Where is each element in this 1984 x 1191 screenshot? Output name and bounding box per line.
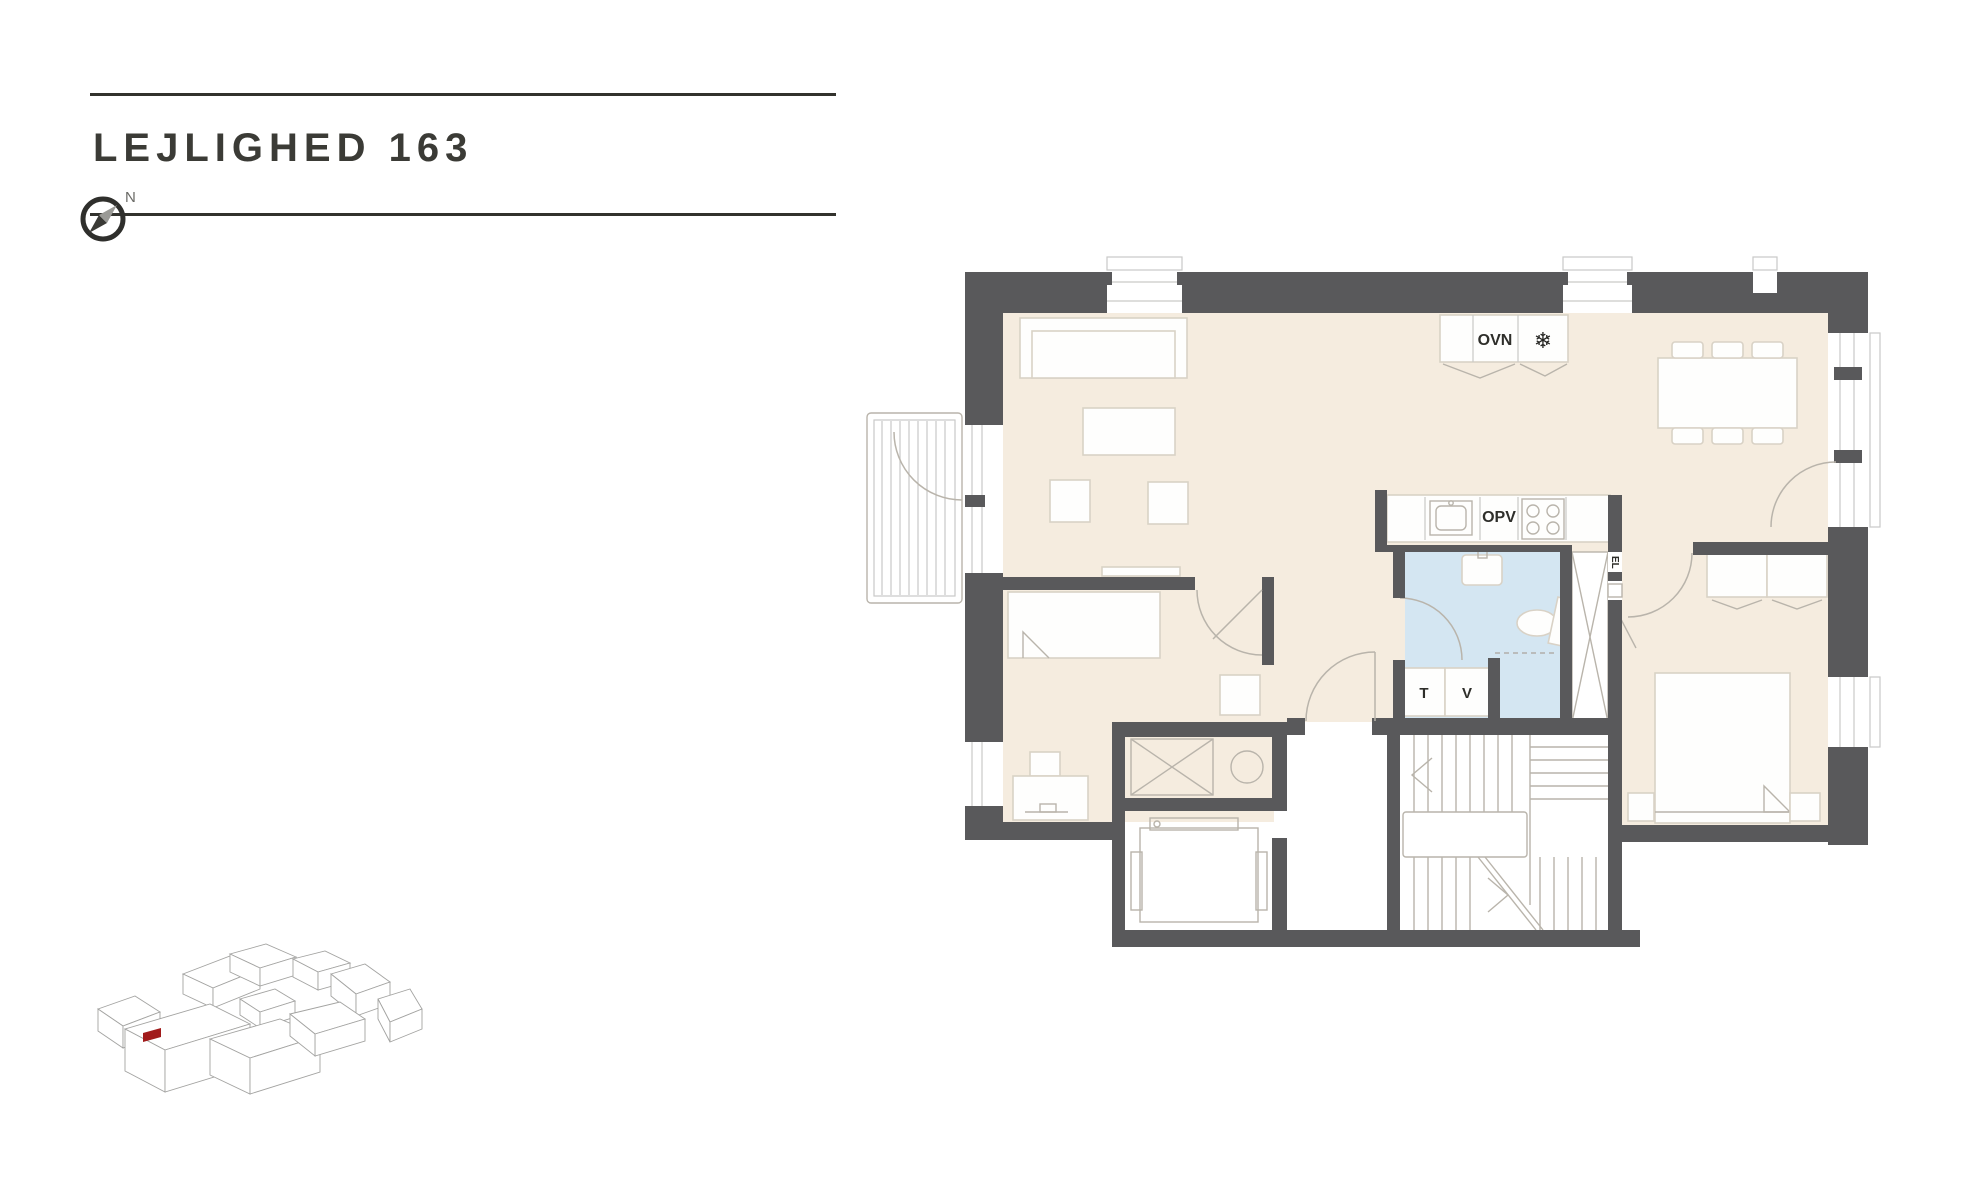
balcony	[867, 413, 962, 603]
page-title: LEJLIGHED 163	[93, 126, 473, 171]
shelf	[1102, 567, 1180, 576]
dining-table	[1658, 358, 1797, 428]
title-rule-bottom	[90, 213, 836, 216]
floorplan-sheet: LEJLIGHED 163 N	[0, 0, 1984, 1191]
armchair	[1148, 482, 1188, 524]
dryer-label: T	[1419, 685, 1428, 702]
washer-label: V	[1462, 685, 1472, 702]
coffee-table	[1083, 408, 1175, 455]
stair-arrow-up	[1412, 758, 1432, 792]
desk	[1013, 776, 1088, 820]
wardrobe	[1707, 553, 1767, 597]
closet	[1220, 675, 1260, 715]
stair-landing	[1403, 812, 1527, 857]
title-rule-top	[90, 93, 836, 96]
bathroom-sink	[1462, 555, 1502, 585]
electrical-label: EL	[1609, 556, 1620, 569]
desk-chair	[1030, 752, 1060, 776]
oven-label: OVN	[1478, 332, 1513, 349]
floor-plan: T V EL	[855, 190, 1910, 990]
bathroom: T V	[1400, 551, 1572, 718]
dining-furniture	[1658, 342, 1797, 444]
sofa-seat	[1032, 331, 1175, 378]
dishwasher-label: OPV	[1482, 509, 1516, 526]
compass-north-label: N	[125, 189, 136, 206]
elevator-car	[1140, 828, 1258, 922]
nightstand	[1790, 793, 1820, 821]
stairwell	[1403, 733, 1608, 930]
wardrobe	[1767, 553, 1827, 597]
compass: N	[75, 186, 165, 258]
site-buildings	[98, 944, 422, 1094]
bed-double	[1655, 673, 1790, 823]
nightstand	[1628, 793, 1654, 821]
bed-single	[1008, 592, 1160, 658]
armchair	[1050, 480, 1090, 522]
freezer-icon: ❄	[1534, 329, 1552, 354]
site-map	[88, 942, 433, 1137]
